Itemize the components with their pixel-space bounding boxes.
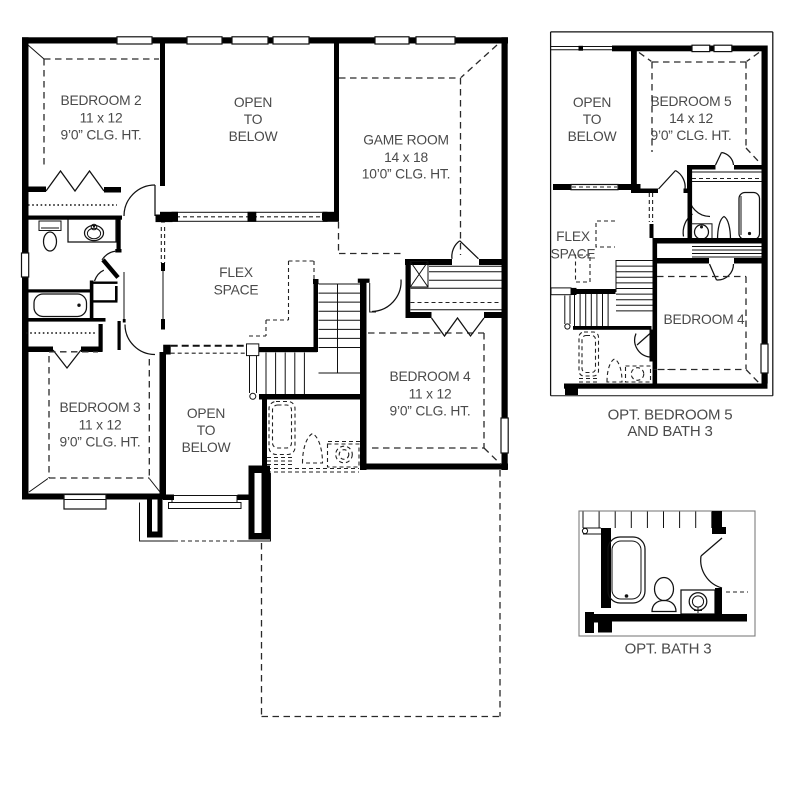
svg-text:10’0” CLG. HT.: 10’0” CLG. HT. — [362, 167, 450, 182]
svg-text:9’0” CLG. HT.: 9’0” CLG. HT. — [60, 435, 141, 450]
svg-text:BEDROOM 3: BEDROOM 3 — [60, 400, 142, 415]
svg-text:11 x 12: 11 x 12 — [79, 418, 122, 433]
svg-text:OPT. BATH 3: OPT. BATH 3 — [625, 641, 712, 658]
svg-text:BELOW: BELOW — [568, 129, 617, 144]
svg-text:TO: TO — [244, 112, 263, 127]
svg-text:OPEN: OPEN — [573, 95, 611, 110]
svg-text:11 x 12: 11 x 12 — [80, 111, 123, 126]
svg-text:BELOW: BELOW — [229, 129, 278, 144]
svg-text:TO: TO — [583, 112, 602, 127]
svg-text:BEDROOM 5: BEDROOM 5 — [651, 94, 733, 109]
svg-text:FLEX: FLEX — [219, 265, 253, 280]
svg-text:SPACE: SPACE — [214, 283, 259, 298]
svg-text:OPT. BEDROOM 5: OPT. BEDROOM 5 — [608, 407, 733, 424]
svg-text:FLEX: FLEX — [556, 229, 590, 244]
svg-text:11 x 12: 11 x 12 — [409, 387, 452, 402]
svg-text:9’0” CLG. HT.: 9’0” CLG. HT. — [651, 128, 732, 143]
svg-text:BELOW: BELOW — [182, 440, 231, 455]
svg-text:9’0” CLG. HT.: 9’0” CLG. HT. — [390, 404, 471, 419]
svg-text:TO: TO — [197, 423, 216, 438]
svg-text:BEDROOM 4: BEDROOM 4 — [664, 312, 746, 327]
svg-text:SPACE: SPACE — [551, 247, 596, 262]
svg-text:AND BATH 3: AND BATH 3 — [627, 423, 712, 440]
svg-text:14 x 18: 14 x 18 — [384, 150, 428, 165]
svg-text:BEDROOM 4: BEDROOM 4 — [390, 369, 472, 384]
svg-text:GAME ROOM: GAME ROOM — [363, 133, 449, 148]
svg-text:OPEN: OPEN — [234, 95, 272, 110]
svg-text:OPEN: OPEN — [187, 406, 225, 421]
svg-text:BEDROOM 2: BEDROOM 2 — [61, 93, 142, 108]
svg-text:14 x 12: 14 x 12 — [669, 111, 713, 126]
svg-text:9’0” CLG. HT.: 9’0” CLG. HT. — [61, 128, 142, 143]
